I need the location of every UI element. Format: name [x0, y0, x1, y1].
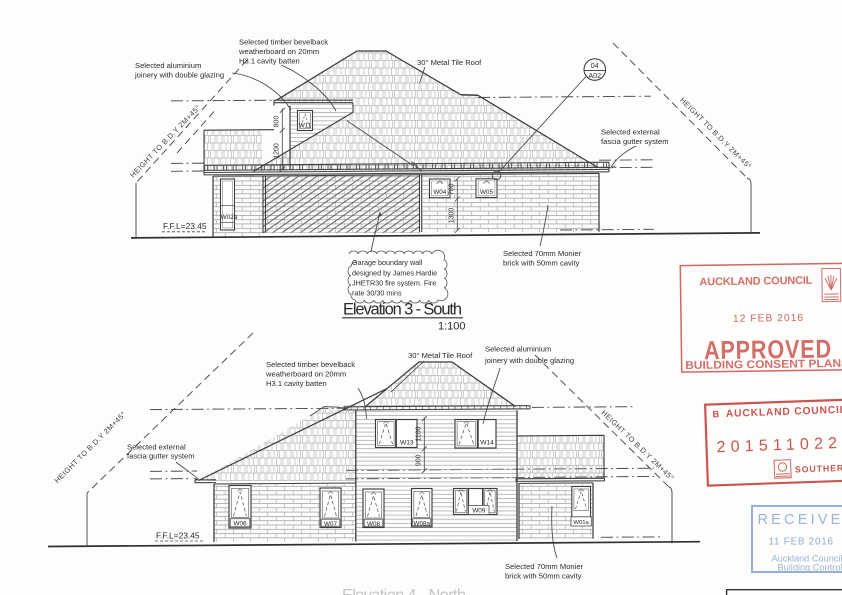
- svg-text:900: 900: [416, 454, 423, 466]
- svg-text:12 FEB 2016: 12 FEB 2016: [733, 313, 804, 325]
- svg-text:fascia gutter system: fascia gutter system: [601, 137, 669, 146]
- svg-text:W08: W08: [367, 521, 380, 528]
- svg-text:W08a: W08a: [414, 521, 431, 528]
- svg-text:700: 700: [449, 183, 456, 195]
- svg-text:F.F.L=23.45: F.F.L=23.45: [163, 221, 207, 231]
- svg-text:W09: W09: [472, 508, 485, 515]
- svg-text:weatherboard on 20mm: weatherboard on 20mm: [265, 370, 346, 379]
- svg-text:Building Control: Building Control: [778, 563, 842, 573]
- svg-text:SOUTHERN I: SOUTHERN I: [795, 462, 842, 474]
- svg-text:AUCKLAND COUNCIL: AUCKLAND COUNCIL: [699, 275, 813, 289]
- svg-text:30° Metal Tile Roof: 30° Metal Tile Roof: [417, 58, 482, 67]
- svg-text:joinery with double glazing: joinery with double glazing: [484, 356, 574, 365]
- svg-text:W02a: W02a: [221, 214, 238, 221]
- svg-text:W11: W11: [299, 123, 312, 130]
- svg-text:B: B: [712, 409, 719, 420]
- svg-text:joinery with double glazing: joinery with double glazing: [134, 71, 224, 80]
- svg-text:H3.1 cavity batten: H3.1 cavity batten: [266, 379, 327, 388]
- svg-text:weatherboard on 20mm: weatherboard on 20mm: [238, 47, 319, 56]
- svg-text:Selected 70mm Monier: Selected 70mm Monier: [505, 562, 584, 571]
- svg-text:rate 30/30 mins: rate 30/30 mins: [352, 288, 402, 297]
- svg-text:F.F.L=23.45: F.F.L=23.45: [156, 531, 200, 541]
- svg-text:A02: A02: [588, 71, 601, 80]
- svg-text:1:100: 1:100: [438, 321, 466, 333]
- svg-text:W07: W07: [324, 521, 337, 528]
- svg-text:1100: 1100: [416, 426, 423, 441]
- svg-text:W13: W13: [400, 440, 414, 447]
- svg-text:W06: W06: [234, 521, 247, 528]
- svg-text:Selected aluminium: Selected aluminium: [135, 61, 201, 70]
- svg-text:W01a: W01a: [573, 520, 589, 526]
- svg-text:1200: 1200: [274, 143, 281, 159]
- svg-text:800: 800: [274, 116, 281, 128]
- svg-text:W04: W04: [433, 189, 446, 196]
- svg-text:JHETR30 fire system. Fire: JHETR30 fire system. Fire: [352, 279, 436, 288]
- svg-text:W05: W05: [480, 189, 493, 196]
- svg-text:04: 04: [591, 61, 599, 70]
- svg-text:Selected external: Selected external: [601, 128, 660, 137]
- svg-text:brick with 50mm cavity: brick with 50mm cavity: [505, 572, 582, 581]
- svg-text:Selected external: Selected external: [127, 443, 186, 452]
- svg-text:RECEIVED: RECEIVED: [758, 512, 842, 528]
- svg-text:designed by James Hardie: designed by James Hardie: [352, 268, 437, 277]
- svg-text:Selected 70mm Monier: Selected 70mm Monier: [503, 249, 582, 258]
- svg-text:W14: W14: [480, 440, 494, 447]
- svg-text:11 FEB 2016: 11 FEB 2016: [769, 537, 834, 548]
- svg-text:Selected timber bevelback: Selected timber bevelback: [239, 38, 328, 47]
- svg-text:H3.1 cavity batten: H3.1 cavity batten: [239, 57, 300, 66]
- svg-text:BUILDING CONSENT PLANS: BUILDING CONSENT PLANS: [685, 358, 842, 372]
- svg-text:30° Metal Tile Roof: 30° Metal Tile Roof: [408, 351, 473, 360]
- svg-text:fascia gutter system: fascia gutter system: [127, 452, 195, 461]
- svg-text:Selected timber bevelback: Selected timber bevelback: [266, 360, 355, 369]
- svg-text:Garage boundary wall: Garage boundary wall: [352, 258, 423, 267]
- svg-text:Selected aluminium: Selected aluminium: [485, 345, 551, 354]
- svg-text:Elevation 4 - North: Elevation 4 - North: [342, 587, 466, 595]
- svg-text:Elevation 3 - South: Elevation 3 - South: [343, 301, 462, 319]
- svg-text:1300: 1300: [449, 208, 456, 224]
- svg-text:brick with 50mm cavity: brick with 50mm cavity: [503, 259, 580, 268]
